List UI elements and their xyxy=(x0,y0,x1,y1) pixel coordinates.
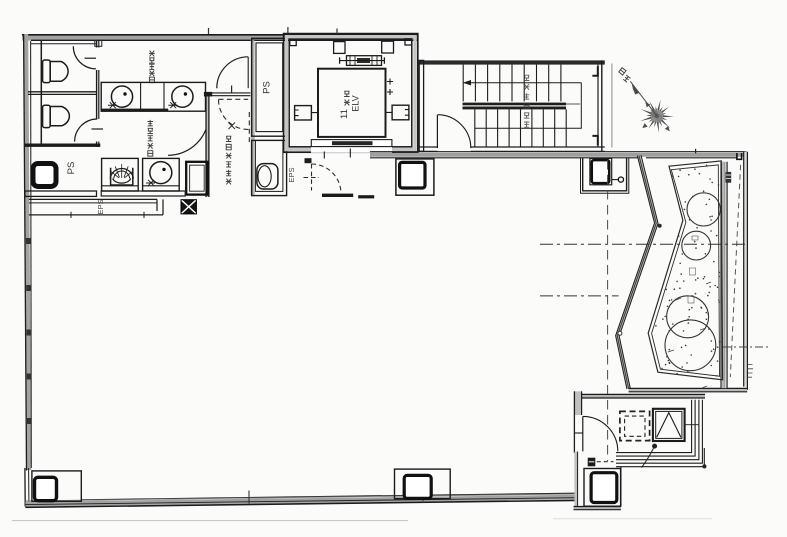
svg-text:EPS: EPS xyxy=(287,167,296,182)
svg-text:EPS: EPS xyxy=(96,199,105,214)
svg-text:PS: PS xyxy=(66,162,77,175)
svg-text:11: 11 xyxy=(339,109,350,119)
svg-text:PS: PS xyxy=(262,81,273,94)
svg-text:ELV: ELV xyxy=(351,95,361,111)
